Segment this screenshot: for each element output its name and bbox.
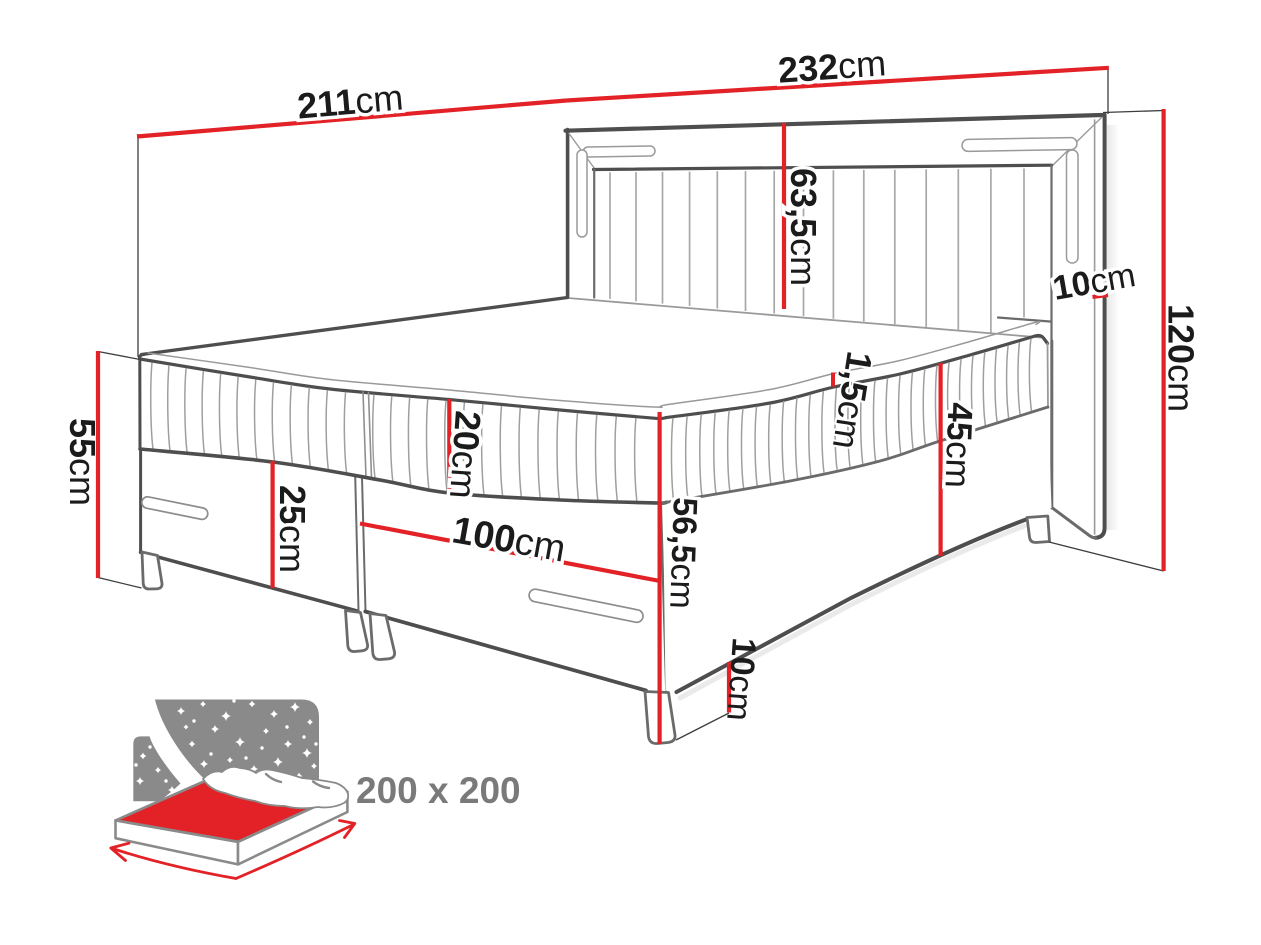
svg-text:56,5cm: 56,5cm bbox=[662, 497, 704, 610]
svg-text:120cm: 120cm bbox=[1161, 304, 1202, 412]
svg-text:55cm: 55cm bbox=[62, 418, 103, 506]
svg-text:25cm: 25cm bbox=[272, 485, 313, 573]
svg-text:200 x 200: 200 x 200 bbox=[356, 770, 521, 811]
svg-text:10cm: 10cm bbox=[719, 636, 763, 722]
svg-text:20cm: 20cm bbox=[442, 409, 489, 500]
svg-text:63,5cm: 63,5cm bbox=[783, 168, 824, 286]
svg-text:232cm: 232cm bbox=[777, 42, 888, 90]
svg-text:45cm: 45cm bbox=[938, 402, 980, 489]
